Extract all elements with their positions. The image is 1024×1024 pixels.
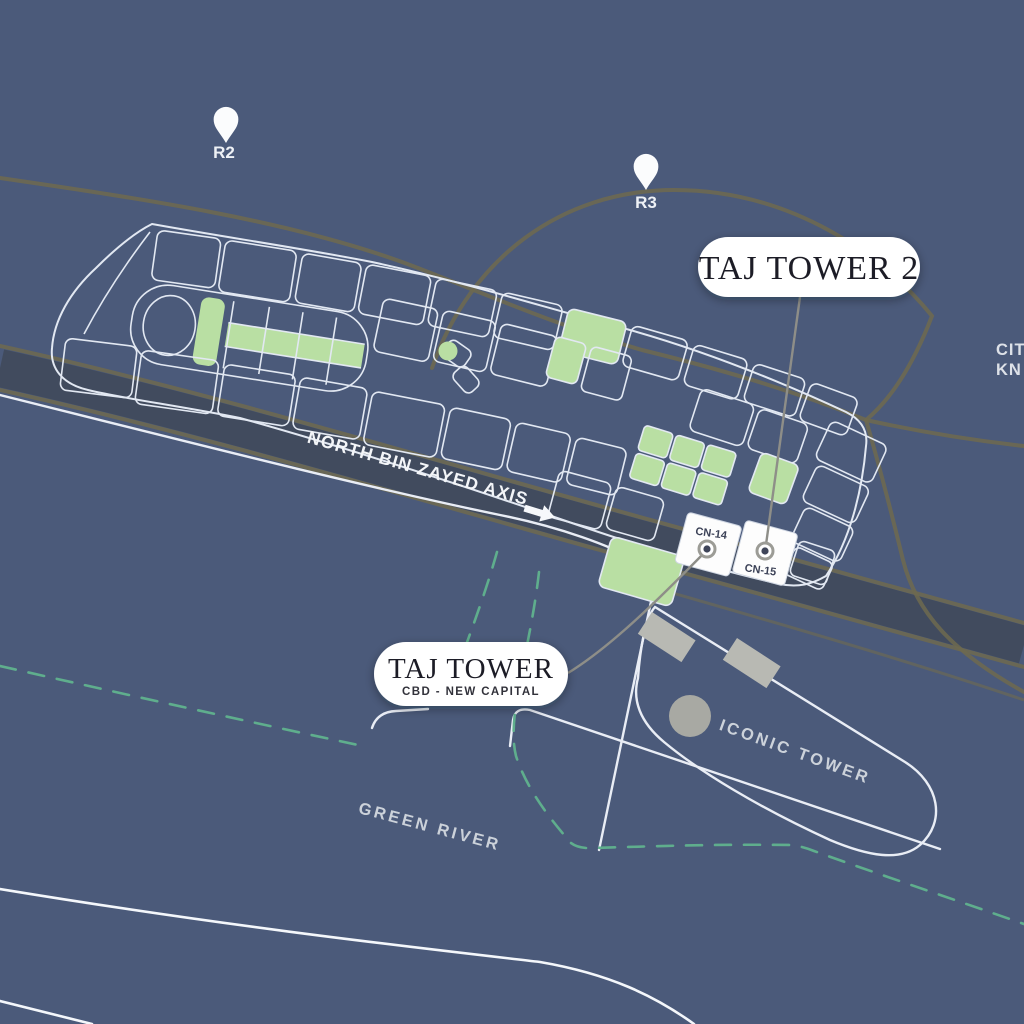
site-map-stage: CN-14 CN-15 ICONIC TOWER NORTH BIN ZAYED… <box>0 0 1024 1024</box>
green-circle-park <box>439 342 458 361</box>
iconic-tower-marker <box>669 695 711 737</box>
city-partial-label-line2: KN <box>996 361 1022 379</box>
taj-tower-2-pill[interactable]: TAJ TOWER 2 <box>698 237 920 297</box>
taj-tower-title: TAJ TOWER <box>388 653 554 685</box>
pin-r3-label: R3 <box>635 193 657 212</box>
site-map: CN-14 CN-15 ICONIC TOWER NORTH BIN ZAYED… <box>0 0 1024 1024</box>
taj-tower-pill[interactable]: TAJ TOWER CBD - NEW CAPITAL <box>374 642 568 706</box>
pin-r2-label: R2 <box>213 143 235 162</box>
taj-tower-subtitle: CBD - NEW CAPITAL <box>402 686 540 698</box>
city-partial-label-line1: CIT <box>996 341 1024 359</box>
taj-tower-2-title: TAJ TOWER 2 <box>699 250 919 287</box>
